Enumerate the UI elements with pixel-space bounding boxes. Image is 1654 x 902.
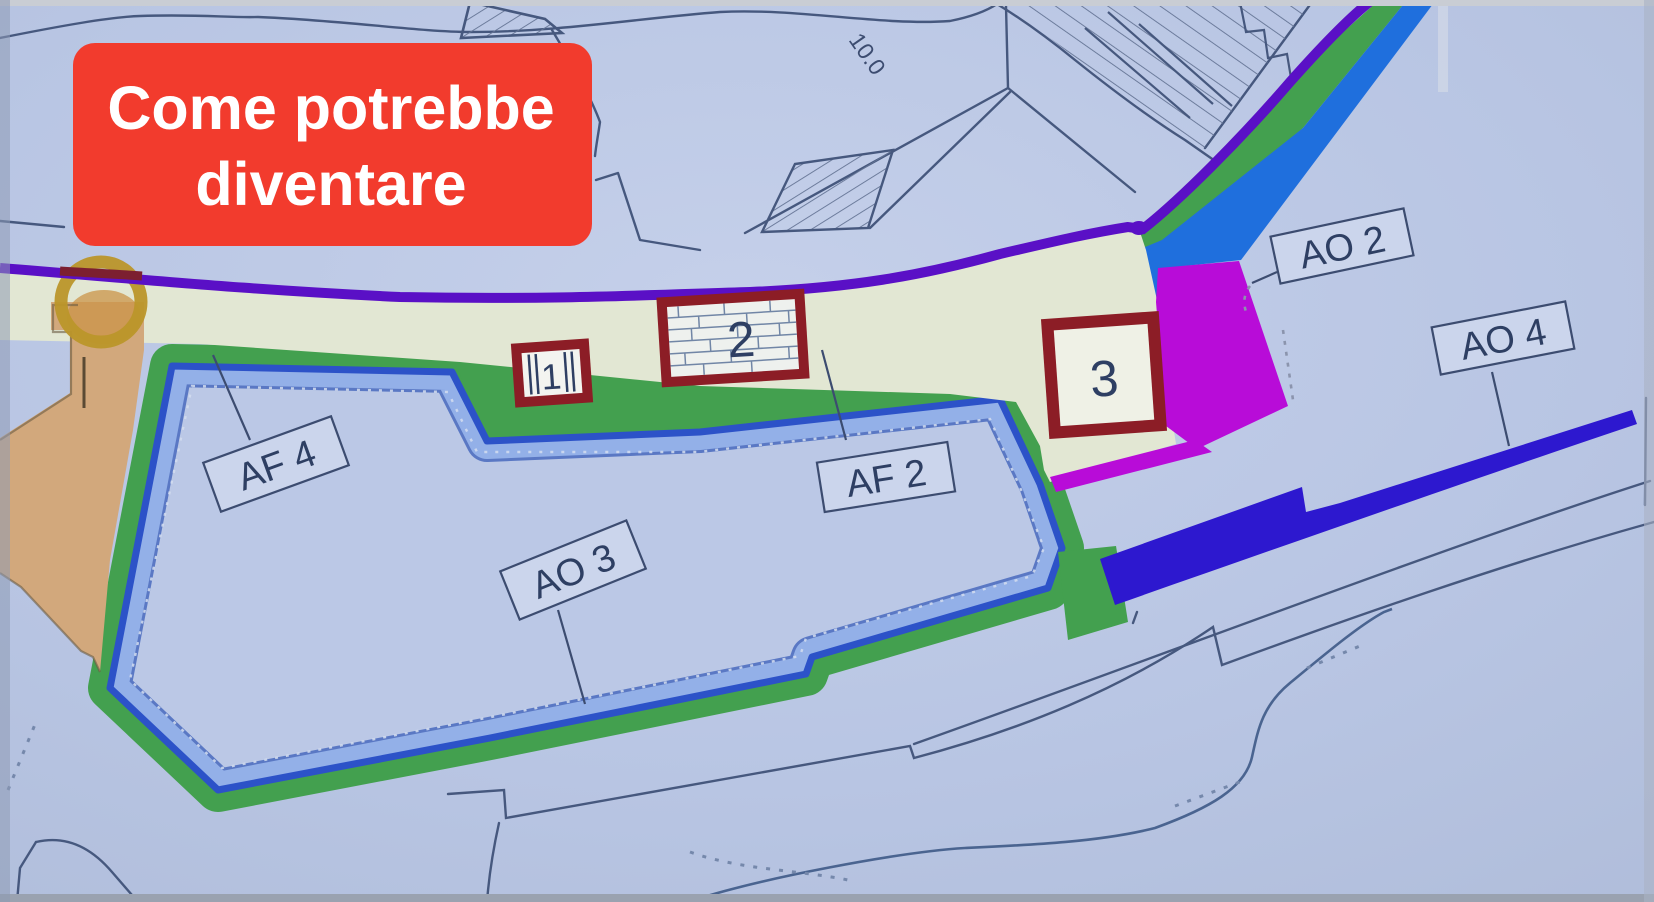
svg-text:Come potrebbe: Come potrebbe (107, 74, 554, 142)
svg-text:diventare: diventare (195, 150, 466, 218)
svg-text:2: 2 (726, 311, 757, 369)
svg-text:1: 1 (540, 355, 563, 397)
svg-text:3: 3 (1088, 349, 1120, 408)
